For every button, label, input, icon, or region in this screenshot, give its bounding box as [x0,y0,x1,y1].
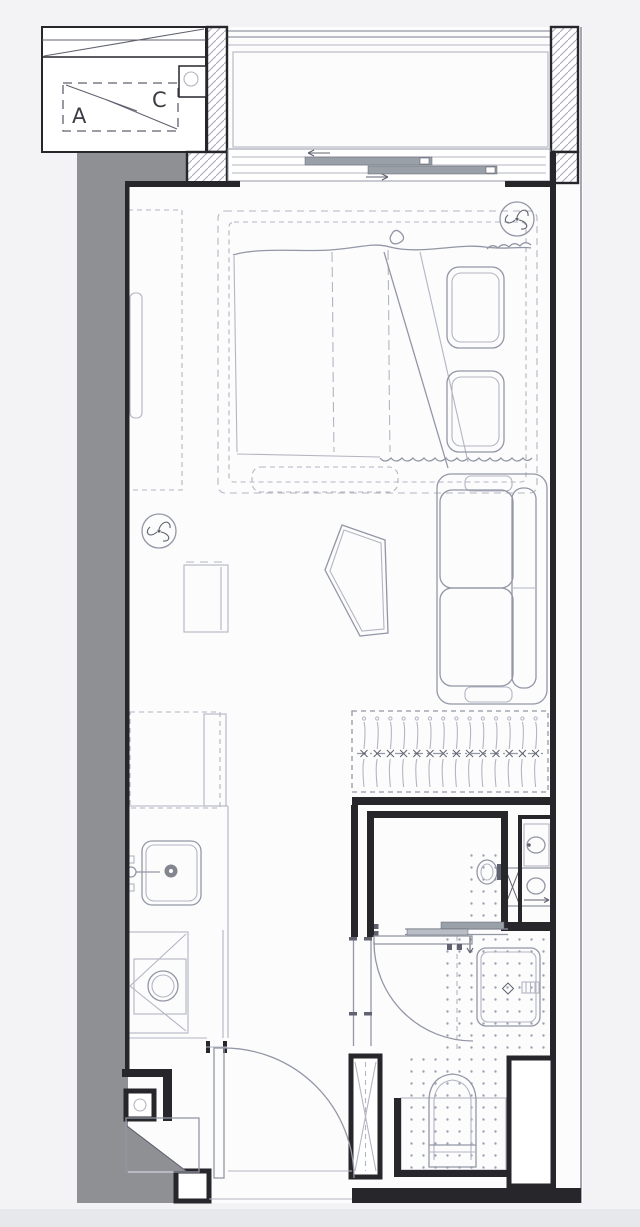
duct-shaft [351,1056,380,1177]
floor-plan-drawing: A C [0,0,640,1227]
entry-niche [122,1069,172,1121]
door-handle [486,167,495,173]
ac-label-a: A [72,104,87,128]
balcony-sliding-door [228,149,550,181]
column-hatched [207,27,227,152]
column-hatched [187,152,227,183]
threshold-column [176,1171,209,1201]
floor-plan-page: A C [0,0,640,1227]
ac-label-c: C [152,88,167,112]
door-handle [420,158,429,164]
sliding-panel [368,166,497,174]
ac-platform: A C [42,27,206,152]
column-hatched [551,27,578,152]
sliding-panel [305,157,432,165]
